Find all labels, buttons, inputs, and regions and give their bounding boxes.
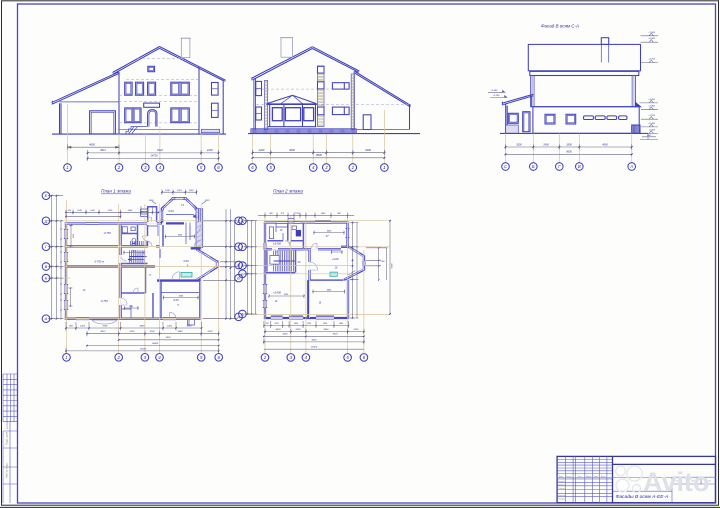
svg-text:9600: 9600 (316, 153, 322, 157)
svg-text:Провер.: Провер. (558, 484, 566, 486)
svg-text:+2.200: +2.200 (493, 95, 501, 97)
svg-text:Б: Б (45, 276, 48, 281)
svg-text:Б: Б (241, 271, 244, 276)
svg-text:2: 2 (263, 355, 267, 360)
svg-text:Лист: Лист (578, 476, 582, 478)
svg-text:Подп. дата: Подп. дата (5, 431, 9, 445)
svg-text:+3.00: +3.00 (332, 257, 339, 261)
svg-text:+2.800: +2.800 (491, 90, 499, 92)
svg-text:4800: 4800 (602, 143, 608, 146)
svg-text:4612: 4612 (100, 148, 106, 152)
svg-text:2: 2 (351, 165, 355, 170)
svg-text:8222: 8222 (157, 148, 163, 152)
svg-text:2400: 2400 (542, 143, 549, 146)
svg-text:1800: 1800 (566, 143, 572, 146)
svg-text:1520: 1520 (149, 200, 155, 202)
svg-text:План 2 этажа: План 2 этажа (273, 189, 303, 194)
svg-text:Изм: Изм (559, 476, 563, 478)
svg-text:2: 2 (117, 165, 121, 170)
svg-text:9600: 9600 (312, 339, 318, 341)
svg-text:Ж: Ж (274, 299, 278, 303)
svg-text:4640: 4640 (289, 148, 295, 152)
svg-text:1100: 1100 (189, 190, 194, 192)
svg-text:1100: 1100 (165, 190, 170, 192)
svg-text:2300: 2300 (129, 331, 136, 333)
svg-text:2300: 2300 (295, 329, 302, 331)
svg-text:9600: 9600 (566, 151, 572, 154)
svg-text:+3.000: +3.000 (273, 291, 282, 295)
svg-text:2200: 2200 (258, 148, 265, 152)
svg-text:-0.750 т: -0.750 т (94, 260, 105, 264)
svg-text:+5.700: +5.700 (648, 59, 656, 61)
svg-text:4612: 4612 (101, 330, 107, 333)
svg-text:План 1 этажа: План 1 этажа (101, 189, 131, 194)
svg-text:В: В (319, 301, 321, 305)
svg-text:Д: Д (240, 218, 244, 223)
svg-text:±3.000: ±3.000 (273, 242, 281, 246)
svg-text:15500: 15500 (311, 347, 318, 349)
svg-text:+3.000: +3.000 (648, 99, 656, 101)
svg-text:+0.400: +0.400 (648, 122, 656, 125)
svg-text:Н.контр.: Н.контр. (558, 495, 566, 497)
svg-text:+1.200: +1.200 (648, 115, 656, 117)
svg-text:+6.800: +6.800 (648, 38, 656, 40)
svg-text:2200: 2200 (353, 329, 360, 331)
svg-text:Фасад В осям С-А: Фасад В осям С-А (541, 24, 579, 29)
svg-text:Кол.уч: Кол.уч (566, 476, 571, 478)
svg-text:4240: 4240 (140, 325, 146, 328)
svg-text:1300: 1300 (80, 326, 86, 328)
svg-text:Разраб.: Разраб. (558, 481, 566, 483)
svg-text:-0.750: -0.750 (100, 299, 108, 303)
svg-text:Avito: Avito (643, 467, 710, 497)
svg-text:4600: 4600 (276, 328, 282, 331)
svg-text:14725: 14725 (150, 154, 158, 158)
svg-text:В: В (241, 263, 244, 268)
svg-text:А: А (44, 316, 48, 321)
svg-text:2: 2 (116, 355, 120, 360)
svg-text:1910: 1910 (177, 190, 183, 192)
svg-text:Т.контр.: Т.контр. (558, 488, 566, 490)
svg-text:3640: 3640 (178, 330, 184, 333)
svg-text:1290: 1290 (150, 331, 156, 333)
svg-text:2200: 2200 (207, 331, 214, 333)
svg-text:2160: 2160 (107, 210, 113, 212)
svg-text:0.00: 0.00 (183, 259, 189, 263)
svg-text:1300: 1300 (167, 326, 173, 328)
svg-text:2600: 2600 (515, 143, 522, 146)
svg-text:2550: 2550 (186, 326, 193, 328)
svg-text:17: 17 (325, 234, 329, 238)
svg-text:А: А (629, 164, 633, 169)
svg-text:Подп: Подп (593, 476, 598, 478)
svg-text:Д: Д (44, 218, 48, 223)
svg-text:9600: 9600 (392, 263, 394, 269)
svg-text:6900: 6900 (283, 334, 289, 336)
svg-text:А: А (240, 312, 244, 317)
svg-text:0.00: 0.00 (168, 209, 174, 213)
svg-text:8600: 8600 (333, 334, 339, 336)
svg-text:2040: 2040 (127, 209, 133, 212)
svg-text:+7.500: +7.500 (648, 32, 656, 34)
svg-text:3160: 3160 (103, 326, 109, 328)
svg-text:Б: Б (532, 164, 535, 169)
svg-text:-0.750: -0.750 (103, 231, 111, 235)
svg-text:В: В (45, 264, 48, 269)
svg-text:-0.600: -0.600 (649, 129, 656, 131)
svg-text:Инв № подл.: Инв № подл. (5, 462, 9, 478)
svg-text:2200: 2200 (206, 148, 213, 152)
svg-text:Утверд.: Утверд. (558, 499, 566, 501)
svg-text:1520: 1520 (205, 200, 211, 202)
svg-text:15525: 15525 (140, 348, 147, 350)
svg-text:В: В (578, 164, 581, 169)
svg-text:№док: №док (586, 475, 591, 478)
svg-text:+2.800: +2.800 (648, 106, 656, 108)
svg-text:9600: 9600 (166, 337, 172, 339)
svg-text:Е: Е (45, 193, 48, 198)
svg-text:3400: 3400 (365, 148, 371, 152)
svg-text:соглас: соглас (6, 420, 9, 429)
svg-text:6400: 6400 (324, 328, 330, 331)
svg-text:0.00: 0.00 (173, 298, 179, 302)
svg-text:14400: 14400 (152, 342, 159, 345)
svg-text:4600: 4600 (89, 143, 95, 147)
